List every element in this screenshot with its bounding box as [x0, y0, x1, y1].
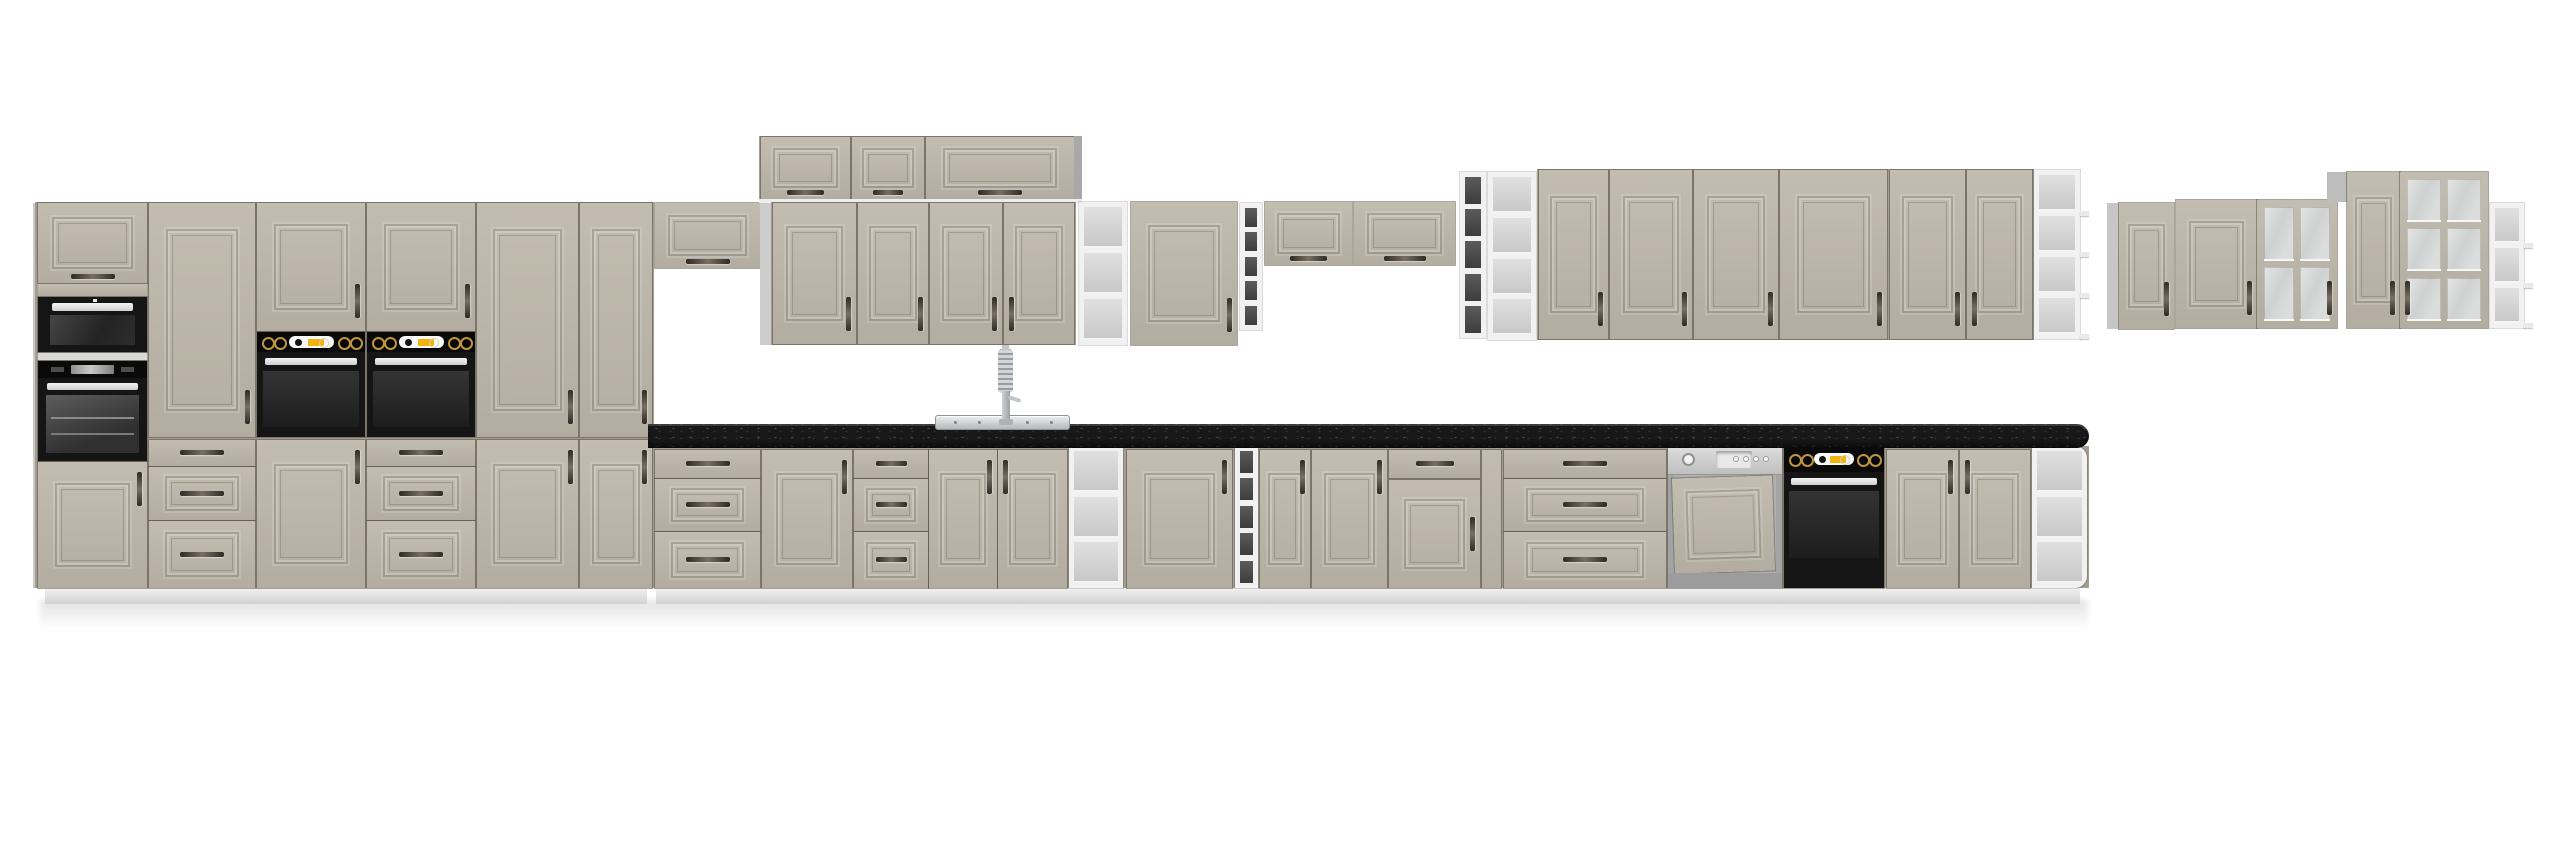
cabinet-handle — [918, 297, 923, 331]
door-center-panel — [1979, 481, 2011, 557]
wall-flip-cabinet — [655, 203, 760, 268]
base-drawer — [1504, 450, 1666, 478]
shelf-edge — [2080, 334, 2089, 339]
base-drawer — [655, 450, 760, 478]
cabinet-handle — [873, 190, 903, 195]
shelf-compartment — [2037, 451, 2082, 492]
cabinet-handle — [1009, 297, 1014, 331]
top-box-door — [852, 137, 924, 199]
glass-pane — [2447, 228, 2481, 271]
indicator-dot — [1734, 457, 1738, 461]
faucet-base — [999, 419, 1013, 425]
door-center-panel — [951, 156, 1049, 180]
display-dot — [295, 339, 302, 346]
oven-buttons — [51, 367, 64, 372]
oven-handle — [375, 358, 468, 365]
glass-pane — [2264, 267, 2294, 321]
door-center-panel — [1694, 497, 1754, 552]
tall-upper-door — [477, 203, 578, 437]
cabinet-handle — [2164, 282, 2169, 316]
oven-knob — [350, 337, 363, 350]
cabinet-handle — [1768, 292, 1773, 326]
base-open-shelf — [1235, 446, 1258, 588]
wall-door — [1539, 170, 1608, 339]
display-circle — [1840, 455, 1850, 465]
door-center-panel — [948, 481, 978, 557]
cabinet-handle — [686, 259, 730, 264]
door-center-panel — [870, 156, 906, 180]
cabinet-handle — [245, 390, 250, 424]
wall-door — [930, 203, 1002, 344]
oven-window — [46, 395, 140, 453]
built-under-oven — [1784, 446, 1884, 588]
tall-upper-door — [257, 203, 365, 331]
cabinet-handle — [2327, 281, 2332, 315]
base-drawer — [854, 450, 928, 478]
cabinet-handle — [1227, 298, 1232, 332]
oven-window — [1789, 491, 1879, 558]
cabinet-handle — [686, 502, 730, 507]
door-center-panel — [1910, 204, 1945, 305]
tall-upper-door — [580, 203, 652, 437]
door-center-panel — [2197, 229, 2236, 299]
cabinet-handle — [1563, 557, 1607, 562]
indicator-dot — [1764, 457, 1768, 461]
door-center-panel — [63, 491, 122, 559]
cabinet-handle — [842, 460, 847, 494]
door-center-panel — [392, 232, 450, 302]
door-center-panel — [1332, 481, 1367, 557]
dishwasher-control-panel — [1668, 446, 1782, 475]
side-wedge — [2327, 172, 2347, 202]
shelf-edge — [2524, 243, 2533, 248]
shelf-edge — [2080, 211, 2089, 216]
cabinet-handle — [686, 557, 730, 562]
door-center-panel — [676, 223, 739, 248]
cabinet-handle — [399, 552, 443, 557]
door-center-panel — [600, 237, 632, 403]
glass-wall-cabinet — [2400, 172, 2488, 328]
top-box-door — [926, 137, 1074, 199]
shelf-compartment — [1493, 177, 1531, 213]
shelf-compartment — [1074, 497, 1118, 538]
shelf-compartment — [1465, 177, 1481, 204]
door-center-panel — [282, 232, 340, 302]
cabinet-handle — [1563, 461, 1607, 466]
kitchen-product-render — [0, 0, 2560, 848]
wall-door — [2347, 172, 2400, 328]
dishwasher-base — [1668, 573, 1782, 588]
shelf-compartment — [2495, 248, 2519, 283]
shelf-compartment — [1240, 506, 1253, 528]
base-door — [1887, 450, 1958, 588]
wall-door — [1610, 170, 1692, 339]
cabinet-handle — [642, 390, 647, 424]
shelf-compartment — [1465, 274, 1481, 301]
shelf-compartment — [1465, 306, 1481, 333]
shelf-compartment — [2495, 208, 2519, 243]
cabinet-handle — [1972, 292, 1977, 326]
door-center-panel — [877, 234, 909, 313]
door-center-panel — [1152, 481, 1207, 557]
display-dot — [1819, 456, 1826, 463]
wall-door — [2176, 200, 2257, 328]
shelf-compartment — [1493, 299, 1531, 335]
cabinet-handle — [399, 450, 443, 455]
wall-door — [1131, 202, 1237, 345]
glass-pane — [2407, 228, 2441, 271]
tall-lower-door — [257, 440, 365, 588]
door-center-panel — [1906, 481, 1939, 557]
wall-door — [2119, 203, 2174, 329]
cabinet-handle — [1682, 292, 1687, 326]
cabinet-handle — [992, 297, 997, 331]
plinth — [45, 588, 647, 604]
door-center-panel — [174, 237, 230, 403]
cabinet-handle — [876, 461, 907, 466]
oven-knob — [384, 337, 397, 350]
base-drawer — [1389, 450, 1480, 478]
dishwasher — [1668, 446, 1782, 588]
built-in-oven — [367, 332, 475, 437]
base-door — [1960, 450, 2030, 588]
faucet-deck-dot — [954, 421, 957, 424]
oven-display — [399, 336, 444, 348]
power-button — [1682, 453, 1695, 466]
dishwasher-front-panel — [1672, 475, 1775, 573]
shelf-compartment — [1084, 253, 1122, 294]
oven-buttons — [121, 367, 134, 372]
cabinet-handle — [465, 284, 470, 318]
glass-wall-cabinet — [2257, 200, 2337, 328]
glass-pane — [2447, 179, 2481, 222]
glass-pane — [2407, 278, 2441, 321]
sink-base-door — [929, 450, 997, 588]
glass-pane — [2447, 278, 2481, 321]
wall-door — [1694, 170, 1778, 339]
door-center-panel — [1023, 234, 1055, 313]
glass-pane — [2264, 207, 2294, 261]
cabinet-handle — [1877, 292, 1882, 326]
door-center-panel — [600, 472, 632, 556]
faucet-deck-dot — [1050, 421, 1053, 424]
oven-window — [263, 371, 358, 427]
built-in-oven — [257, 332, 365, 437]
tall-lower-door — [580, 440, 652, 588]
shelf-compartment — [2039, 298, 2075, 334]
shelf-compartment — [2495, 288, 2519, 323]
drawer — [367, 440, 475, 466]
wall-door — [858, 203, 928, 344]
built-in-oven — [38, 361, 147, 461]
cabinet-handle — [876, 557, 907, 562]
wall-door — [1890, 170, 1965, 339]
tall-lower-door — [38, 462, 147, 588]
shelf-compartment — [2039, 257, 2075, 293]
cabinet-handle — [1470, 517, 1475, 551]
cabinet-handle — [180, 552, 224, 557]
base-door — [1389, 480, 1480, 588]
shelf-edge — [2080, 252, 2089, 257]
door-center-panel — [794, 234, 835, 313]
base-drawer — [655, 479, 760, 531]
shelf-compartment — [1493, 218, 1531, 254]
drawer — [149, 440, 255, 466]
shelf-compartment — [2039, 175, 2075, 211]
cabinet-handle — [978, 190, 1022, 195]
shelf-compartment — [1240, 478, 1253, 500]
shelf-compartment — [1074, 451, 1118, 492]
wall-open-shelf-end — [2034, 170, 2080, 339]
base-open-shelf — [1069, 446, 1123, 588]
cabinet-handle — [1377, 460, 1382, 494]
cabinet-handle — [399, 491, 443, 496]
wall-open-shelf — [1079, 202, 1127, 345]
door-center-panel — [781, 156, 830, 180]
door-center-panel — [784, 481, 830, 557]
tall-upper-door — [149, 203, 255, 437]
tall-lower-door — [477, 440, 578, 588]
base-door — [1127, 450, 1232, 588]
cabinet-handle — [1948, 460, 1953, 494]
countertop — [648, 424, 2089, 448]
oven-control-panel — [1784, 446, 1884, 472]
door-center-panel — [501, 472, 554, 556]
cabinet-handle — [1563, 502, 1607, 507]
microwave-button — [93, 299, 97, 302]
microwave-window — [50, 315, 135, 345]
cabinet-handle — [568, 450, 573, 484]
drawer — [149, 521, 255, 588]
door-center-panel — [1558, 204, 1589, 305]
oven-rack — [51, 417, 134, 419]
shelf-compartment — [1493, 259, 1531, 295]
door-center-panel — [60, 225, 125, 261]
shelf-compartment — [1245, 281, 1257, 300]
wall-door — [1967, 170, 2032, 339]
wall-door — [1004, 203, 1074, 344]
cabinet-handle — [642, 450, 647, 484]
oven-handle — [1791, 478, 1877, 485]
door-center-panel — [1631, 204, 1671, 305]
door-center-panel — [1805, 204, 1862, 305]
cabinet-handle — [1384, 256, 1426, 261]
cabinet-handle — [355, 450, 360, 484]
oven-knob — [1801, 454, 1814, 467]
tall-flip-door — [38, 203, 147, 283]
cabinet-handle — [137, 472, 142, 506]
cabinet-handle — [987, 460, 992, 494]
base-drawer — [854, 532, 928, 588]
wall-door — [1780, 170, 1887, 339]
oven-control-panel — [257, 332, 365, 352]
shelf-compartment — [1245, 306, 1257, 325]
oven-display — [289, 336, 334, 348]
door-center-panel — [1375, 221, 1434, 246]
shelf-compartment — [1084, 299, 1122, 340]
door-center-panel — [1285, 221, 1332, 246]
oven-control-panel — [38, 361, 147, 378]
display-dot — [405, 339, 412, 346]
oven-display — [1814, 453, 1854, 465]
wall-open-shelf — [1240, 203, 1262, 330]
wall-flip-cabinet — [1354, 202, 1455, 265]
shelf-compartment — [1084, 207, 1122, 248]
oven-knob — [460, 337, 473, 350]
base-drawer — [655, 532, 760, 588]
glass-pane — [2407, 179, 2441, 222]
cabinet-handle — [1598, 292, 1603, 326]
door-center-panel — [1276, 481, 1294, 557]
door-center-panel — [501, 237, 554, 403]
drawer — [367, 467, 475, 520]
cabinet-handle — [355, 284, 360, 318]
oven-control-panel — [367, 332, 475, 352]
cabinet-handle — [846, 297, 851, 331]
shelf-compartment — [1245, 208, 1257, 227]
base-drawer — [1504, 479, 1666, 531]
sink-base-door — [998, 450, 1067, 588]
filler-door — [1482, 450, 1501, 588]
drawer — [367, 521, 475, 588]
filler-face — [38, 284, 147, 296]
shelf-compartment — [1465, 209, 1481, 236]
faucet-deck-dot — [978, 421, 981, 424]
cabinet-handle — [1300, 460, 1305, 494]
glass-pane — [2300, 207, 2330, 261]
wall-open-shelf — [1488, 172, 1536, 340]
cabinet-handle — [1222, 460, 1227, 494]
wall-open-shelf-end — [2490, 203, 2524, 328]
shelf-compartment — [2037, 542, 2082, 583]
cabinet-handle — [1290, 256, 1327, 261]
cabinet-handle — [180, 491, 224, 496]
cabinet-handle — [2405, 281, 2410, 315]
side-panel — [2107, 203, 2119, 329]
base-door — [1312, 450, 1387, 588]
base-door — [1260, 450, 1310, 588]
wall-open-shelf — [1460, 172, 1486, 338]
shelf-compartment — [2039, 216, 2075, 252]
base-drawer — [854, 479, 928, 531]
door-center-panel — [1156, 233, 1212, 314]
oven-knob — [1869, 454, 1882, 467]
top-box-door — [761, 137, 850, 199]
cabinet-handle — [1955, 292, 1960, 326]
shelf-edge — [2524, 323, 2533, 328]
shelf-compartment — [1245, 257, 1257, 276]
oven-rack — [51, 433, 134, 435]
glass-area — [2264, 207, 2330, 321]
door-center-panel — [1985, 204, 2014, 305]
cabinet-handle — [686, 461, 730, 466]
faucet — [993, 349, 1023, 425]
oven-handle — [47, 383, 139, 390]
shelf-compartment — [1074, 542, 1118, 583]
shelf-edge — [2080, 293, 2089, 298]
door-center-panel — [1017, 481, 1048, 557]
floor-shadow — [40, 600, 2088, 630]
shelf-compartment — [1240, 533, 1253, 555]
faucet-coil — [998, 349, 1013, 393]
cabinet-handle — [71, 274, 115, 279]
cabinet-handle — [2390, 281, 2395, 315]
cabinet-handle — [1965, 460, 1970, 494]
display-circle — [319, 338, 329, 348]
built-in-microwave — [38, 297, 147, 352]
oven-handle — [265, 358, 358, 365]
shelf-compartment — [1240, 561, 1253, 583]
shelf-edge — [2524, 283, 2533, 288]
door-center-panel — [2363, 205, 2384, 295]
shelf-compartment — [1465, 241, 1481, 268]
cabinet-handle — [568, 390, 573, 424]
cabinet-handle — [1416, 461, 1454, 466]
cabinet-handle — [180, 450, 224, 455]
cabinet-handle — [876, 502, 907, 507]
microwave-handle — [52, 303, 133, 311]
shelf-compartment — [1245, 232, 1257, 251]
faucet-deck-dot — [1026, 421, 1029, 424]
shelf-compartment — [1240, 451, 1253, 473]
oven-knob — [274, 337, 287, 350]
display-circle — [429, 338, 439, 348]
glass-area — [2407, 179, 2481, 321]
wall-flip-cabinet — [1265, 202, 1352, 265]
door-center-panel — [282, 472, 340, 556]
faucet-cap — [1002, 345, 1009, 350]
plinth — [656, 588, 2080, 604]
wall-door — [773, 203, 856, 344]
oven-display — [71, 365, 115, 374]
shelf-compartment — [2037, 497, 2082, 538]
base-drawer — [1504, 532, 1666, 588]
drawer — [149, 467, 255, 520]
indicator-dot — [1744, 457, 1748, 461]
door-center-panel — [2136, 232, 2157, 300]
cabinet-handle — [1003, 460, 1008, 494]
wall-side-filler — [760, 203, 771, 345]
cabinet-handle — [2247, 281, 2252, 315]
appliance-trim — [38, 353, 147, 360]
base-open-shelf-end — [2032, 446, 2087, 588]
cabinet-handle — [787, 190, 824, 195]
door-center-panel — [950, 234, 982, 313]
door-center-panel — [1412, 507, 1457, 561]
topbox-side — [1074, 136, 1082, 201]
indicator-dot — [1754, 457, 1758, 461]
door-center-panel — [1715, 204, 1757, 305]
oven-window — [373, 371, 468, 427]
base-door — [762, 450, 852, 588]
tall-upper-door — [367, 203, 475, 331]
glass-pane — [2300, 267, 2330, 321]
